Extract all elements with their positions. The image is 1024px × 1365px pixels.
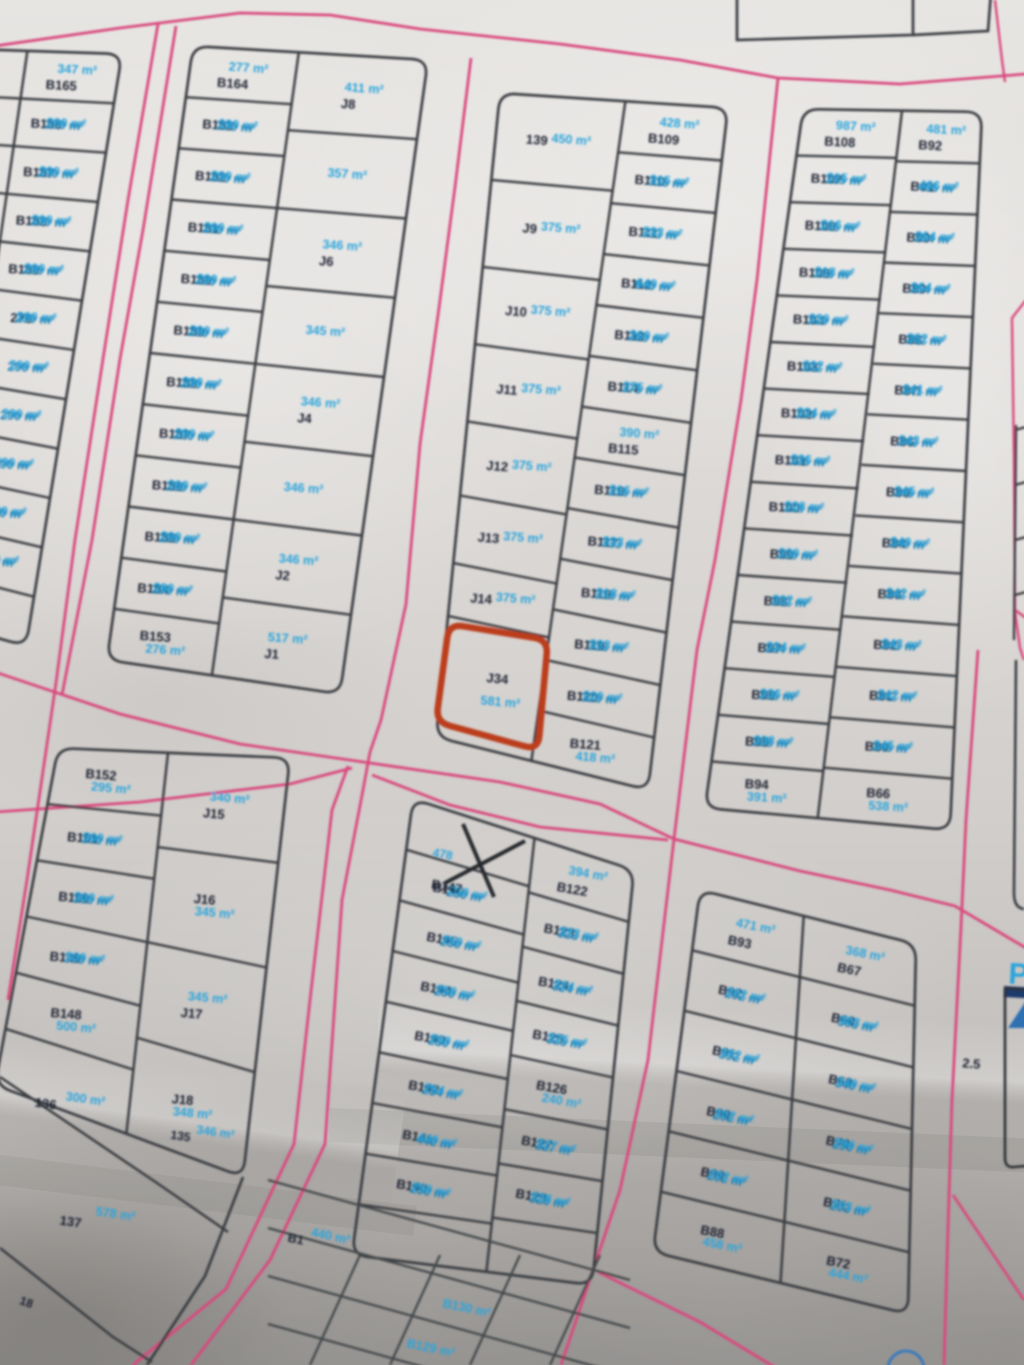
svg-text:135: 135 bbox=[170, 1128, 192, 1145]
svg-text:342 m²: 342 m² bbox=[886, 585, 926, 601]
svg-text:B165: B165 bbox=[45, 77, 77, 94]
svg-text:538 m²: 538 m² bbox=[868, 799, 908, 815]
svg-text:J9: J9 bbox=[522, 220, 538, 236]
svg-text:346 m²: 346 m² bbox=[322, 237, 362, 254]
svg-text:J12: J12 bbox=[486, 458, 509, 475]
svg-text:324 m²: 324 m² bbox=[797, 405, 837, 421]
svg-text:326 m²: 326 m² bbox=[791, 452, 831, 468]
svg-text:290 m²: 290 m² bbox=[39, 164, 79, 180]
svg-text:J2: J2 bbox=[275, 567, 290, 583]
svg-text:290 m²: 290 m² bbox=[0, 455, 35, 471]
svg-text:352 m²: 352 m² bbox=[907, 331, 947, 347]
svg-text:J15: J15 bbox=[202, 805, 225, 822]
svg-text:B108: B108 bbox=[824, 134, 856, 151]
svg-text:290 m²: 290 m² bbox=[0, 552, 20, 568]
svg-text:J4: J4 bbox=[297, 410, 313, 426]
svg-text:290 m²: 290 m² bbox=[182, 374, 222, 391]
svg-text:J1: J1 bbox=[264, 646, 279, 662]
svg-text:136: 136 bbox=[34, 1095, 58, 1113]
svg-text:J10: J10 bbox=[505, 303, 528, 320]
svg-text:342 m²: 342 m² bbox=[878, 687, 918, 703]
svg-text:137: 137 bbox=[59, 1213, 83, 1231]
svg-text:290 m²: 290 m² bbox=[218, 117, 258, 134]
svg-text:139: 139 bbox=[525, 132, 548, 149]
svg-text:315 m²: 315 m² bbox=[827, 170, 867, 186]
svg-text:345 m²: 345 m² bbox=[305, 323, 345, 340]
svg-text:290 m²: 290 m² bbox=[24, 261, 64, 277]
svg-text:B92: B92 bbox=[918, 137, 943, 153]
svg-text:J8: J8 bbox=[340, 96, 355, 112]
svg-text:318 m²: 318 m² bbox=[815, 264, 855, 280]
svg-text:290 m²: 290 m² bbox=[46, 115, 86, 131]
svg-text:290 m²: 290 m² bbox=[0, 503, 27, 519]
svg-text:290 m²: 290 m² bbox=[189, 323, 229, 340]
svg-text:2.5: 2.5 bbox=[962, 1055, 981, 1072]
svg-text:347 m²: 347 m² bbox=[57, 62, 97, 78]
svg-text:290 m²: 290 m² bbox=[9, 358, 49, 374]
svg-text:290 m²: 290 m² bbox=[167, 477, 207, 494]
svg-text:343 m²: 343 m² bbox=[899, 433, 939, 449]
svg-text:338 m²: 338 m² bbox=[754, 733, 794, 749]
svg-text:466 m²: 466 m² bbox=[919, 178, 959, 194]
svg-text:357 m²: 357 m² bbox=[327, 166, 367, 183]
svg-text:334 m²: 334 m² bbox=[766, 639, 806, 655]
svg-text:J13: J13 bbox=[477, 529, 500, 546]
svg-text:290 m²: 290 m² bbox=[2, 406, 42, 422]
svg-text:345 m²: 345 m² bbox=[873, 738, 913, 754]
svg-text:290 m²: 290 m² bbox=[175, 426, 215, 443]
svg-text:J17: J17 bbox=[180, 1005, 203, 1022]
svg-text:336 m²: 336 m² bbox=[760, 686, 800, 702]
svg-text:J6: J6 bbox=[319, 253, 334, 269]
svg-text:346 m²: 346 m² bbox=[300, 394, 340, 411]
svg-text:343 m²: 343 m² bbox=[882, 636, 922, 652]
svg-text:517 m²: 517 m² bbox=[267, 630, 307, 647]
svg-text:987 m²: 987 m² bbox=[836, 118, 876, 134]
svg-text:290 m²: 290 m² bbox=[17, 309, 57, 325]
svg-text:J14: J14 bbox=[470, 590, 494, 607]
svg-text:290 m²: 290 m² bbox=[203, 220, 243, 237]
svg-text:290 m²: 290 m² bbox=[211, 168, 251, 185]
svg-text:277 m²: 277 m² bbox=[228, 60, 268, 77]
svg-text:290 m²: 290 m² bbox=[160, 529, 200, 546]
svg-text:391 m²: 391 m² bbox=[747, 790, 787, 806]
svg-text:346 m²: 346 m² bbox=[278, 551, 318, 568]
svg-text:322 m²: 322 m² bbox=[803, 358, 843, 374]
svg-text:290 m²: 290 m² bbox=[32, 212, 72, 228]
svg-text:364 m²: 364 m² bbox=[911, 280, 951, 296]
svg-text:341 m²: 341 m² bbox=[903, 382, 943, 398]
svg-text:320 m²: 320 m² bbox=[809, 311, 849, 327]
svg-text:345 m²: 345 m² bbox=[894, 483, 934, 499]
svg-text:346 m²: 346 m² bbox=[283, 480, 323, 497]
svg-text:J11: J11 bbox=[496, 381, 518, 398]
svg-text:330 m²: 330 m² bbox=[778, 545, 818, 561]
svg-text:B109: B109 bbox=[648, 130, 680, 147]
svg-text:B115: B115 bbox=[608, 440, 639, 457]
svg-text:276 m²: 276 m² bbox=[145, 642, 185, 659]
svg-text:340 m²: 340 m² bbox=[890, 534, 930, 550]
svg-text:316 m²: 316 m² bbox=[821, 217, 861, 233]
svg-text:B164: B164 bbox=[217, 75, 250, 92]
svg-text:411 m²: 411 m² bbox=[344, 80, 384, 97]
svg-text:290 m²: 290 m² bbox=[196, 271, 236, 288]
svg-text:J34: J34 bbox=[486, 670, 510, 687]
svg-text:481 m²: 481 m² bbox=[926, 122, 966, 138]
svg-text:332 m²: 332 m² bbox=[772, 592, 812, 608]
svg-text:328 m²: 328 m² bbox=[784, 499, 824, 515]
svg-text:290 m²: 290 m² bbox=[153, 580, 193, 597]
svg-text:364 m²: 364 m² bbox=[915, 229, 955, 245]
